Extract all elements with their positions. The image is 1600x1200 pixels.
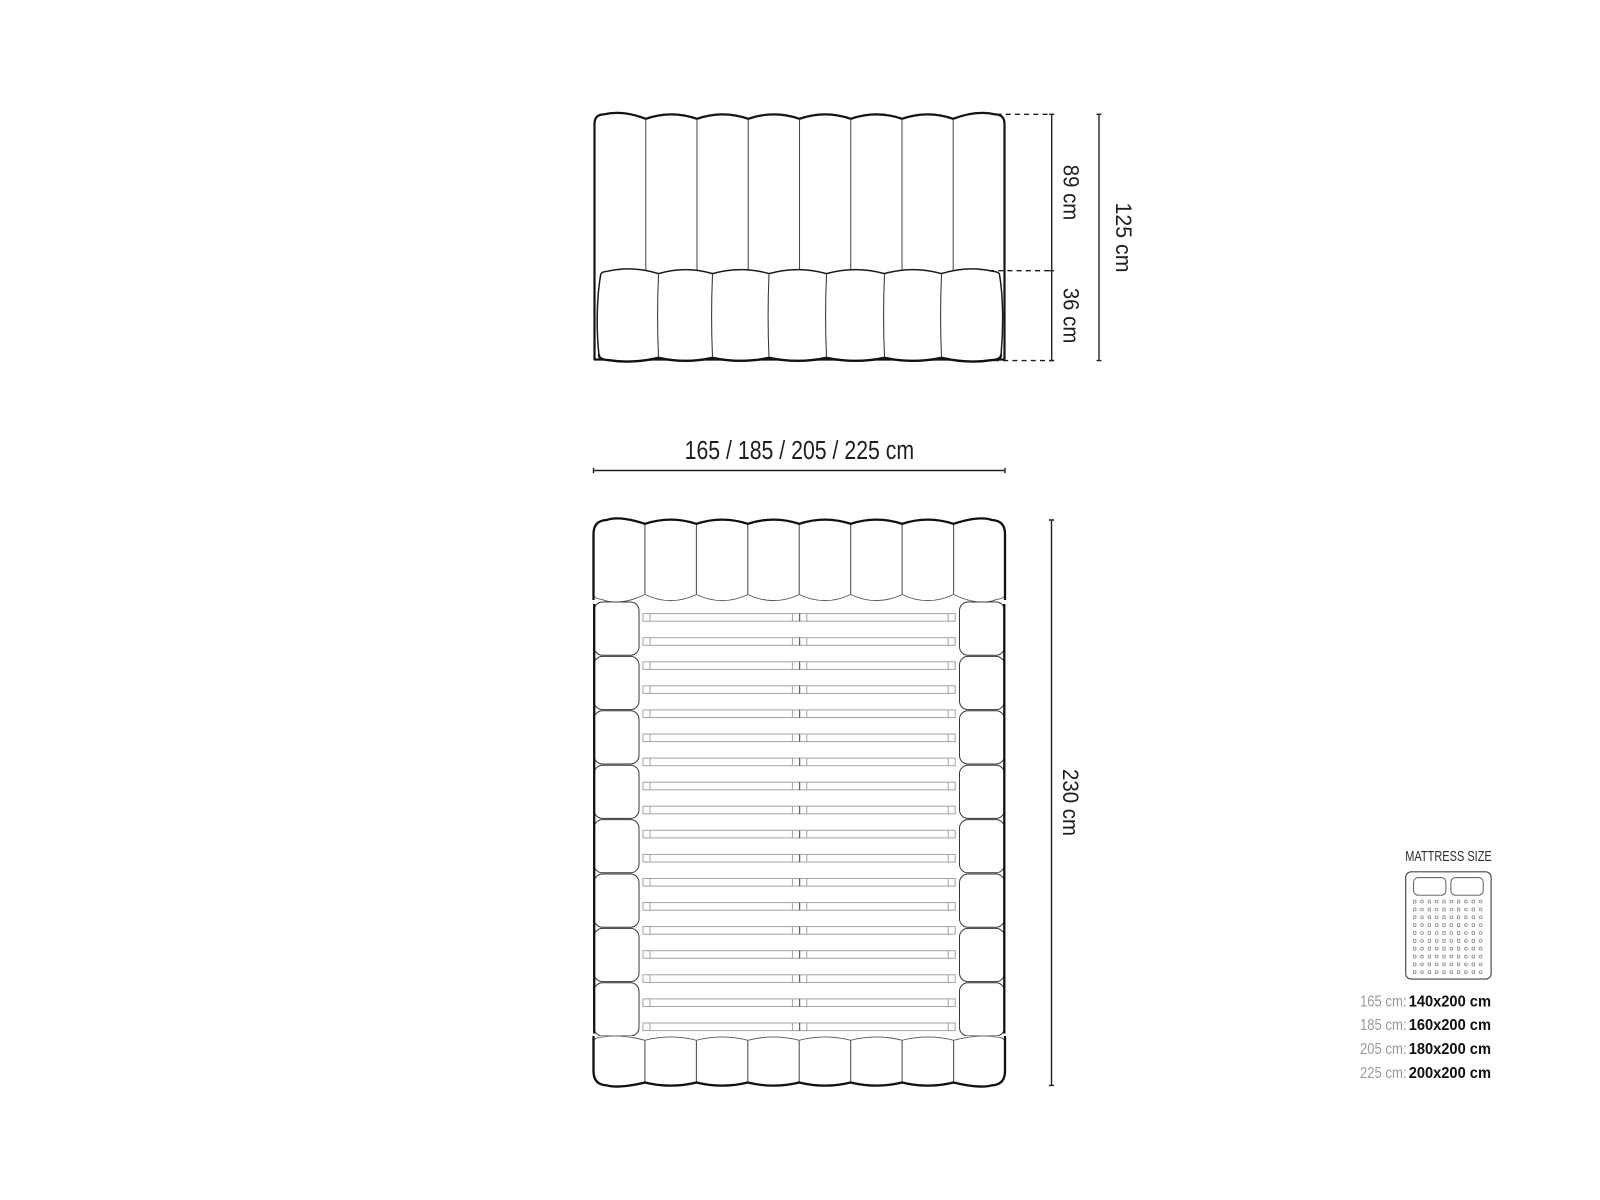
svg-text:140x200 cm: 140x200 cm <box>1409 993 1491 1010</box>
svg-text:165 cm:: 165 cm: <box>1360 993 1407 1010</box>
svg-text:200x200 cm: 200x200 cm <box>1409 1065 1491 1082</box>
svg-text:89 cm: 89 cm <box>1058 165 1083 221</box>
svg-text:125 cm: 125 cm <box>1111 203 1136 273</box>
svg-text:225 cm:: 225 cm: <box>1360 1065 1407 1082</box>
svg-text:230 cm: 230 cm <box>1058 769 1083 836</box>
svg-text:180x200 cm: 180x200 cm <box>1409 1041 1491 1058</box>
svg-text:MATTRESS SIZE: MATTRESS SIZE <box>1405 848 1492 865</box>
svg-text:160x200 cm: 160x200 cm <box>1409 1017 1491 1034</box>
svg-text:36 cm: 36 cm <box>1058 288 1083 344</box>
svg-text:205 cm:: 205 cm: <box>1360 1041 1407 1058</box>
svg-text:185 cm:: 185 cm: <box>1360 1017 1407 1034</box>
svg-text:165 / 185 / 205 / 225 cm: 165 / 185 / 205 / 225 cm <box>685 437 915 465</box>
